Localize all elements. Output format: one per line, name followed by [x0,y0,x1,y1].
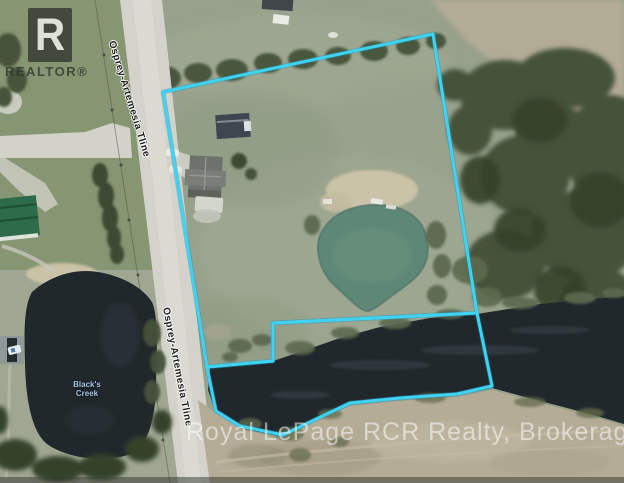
photo-edge [0,477,624,483]
realtor-logo-letter: R [35,12,65,57]
aerial-scene [0,0,624,483]
creek-name-label: Black's Creek [56,380,118,398]
house [184,155,227,199]
realtor-logo-word: REALTOR® [5,64,81,79]
brokerage-watermark: Royal LePage RCR Realty, Brokerage [186,418,624,447]
aerial-photo: Osprey-Artemesia Tline Osprey-Artemesia … [0,0,624,483]
bush [245,168,257,180]
boat [323,199,332,204]
realtor-logo-block: R [28,8,72,62]
bush [231,153,247,169]
barn [215,113,252,139]
green-roof-building [0,195,40,241]
